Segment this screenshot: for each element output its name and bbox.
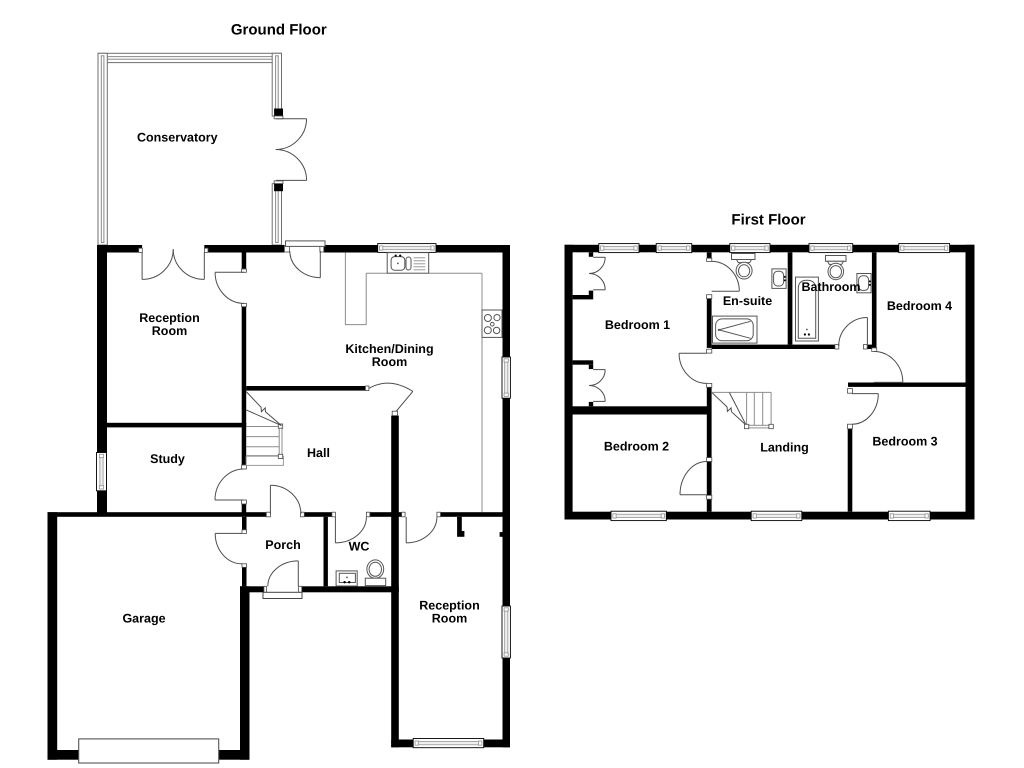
svg-text:Bedroom 1: Bedroom 1 [605, 318, 670, 332]
svg-text:Conservatory: Conservatory [137, 131, 218, 145]
svg-text:First Floor: First Floor [731, 212, 805, 229]
svg-text:Room: Room [372, 355, 407, 369]
svg-text:Porch: Porch [265, 538, 300, 552]
svg-text:En-suite: En-suite [723, 294, 772, 308]
svg-text:Room: Room [152, 324, 187, 338]
svg-text:Ground Floor: Ground Floor [231, 22, 327, 39]
svg-text:Garage: Garage [122, 612, 165, 626]
svg-text:Study: Study [150, 452, 185, 466]
svg-text:Hall: Hall [307, 446, 330, 460]
svg-text:Room: Room [432, 612, 467, 626]
svg-text:WC: WC [349, 540, 370, 554]
svg-text:Reception: Reception [419, 599, 479, 613]
svg-text:Bedroom 2: Bedroom 2 [604, 440, 669, 454]
svg-text:Bedroom 4: Bedroom 4 [887, 299, 952, 313]
svg-text:Bathroom: Bathroom [801, 280, 860, 294]
svg-text:Bedroom 3: Bedroom 3 [872, 435, 937, 449]
svg-text:Landing: Landing [760, 441, 809, 455]
svg-text:Kitchen/Dining: Kitchen/Dining [345, 342, 433, 356]
svg-text:Reception: Reception [139, 311, 199, 325]
